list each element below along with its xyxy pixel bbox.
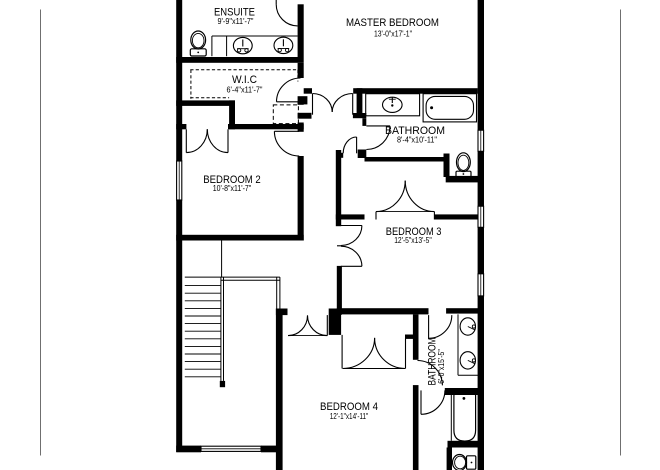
svg-text:MASTER BEDROOM: MASTER BEDROOM (346, 17, 439, 29)
svg-text:8'-4"x10'-11": 8'-4"x10'-11" (397, 135, 437, 145)
svg-text:12'-5"x13'-5": 12'-5"x13'-5" (394, 235, 432, 245)
svg-text:9'-9"x11'-7": 9'-9"x11'-7" (218, 16, 254, 26)
svg-text:13'-0"x17'-1": 13'-0"x17'-1" (374, 29, 412, 39)
svg-text:10'-8"x11'-7": 10'-8"x11'-7" (213, 183, 252, 193)
svg-text:6'-0"x15'-5": 6'-0"x15'-5" (436, 349, 446, 384)
svg-text:12'-1"x14'-11": 12'-1"x14'-11" (330, 411, 369, 421)
svg-text:6'-4"x11'-7": 6'-4"x11'-7" (227, 85, 263, 95)
